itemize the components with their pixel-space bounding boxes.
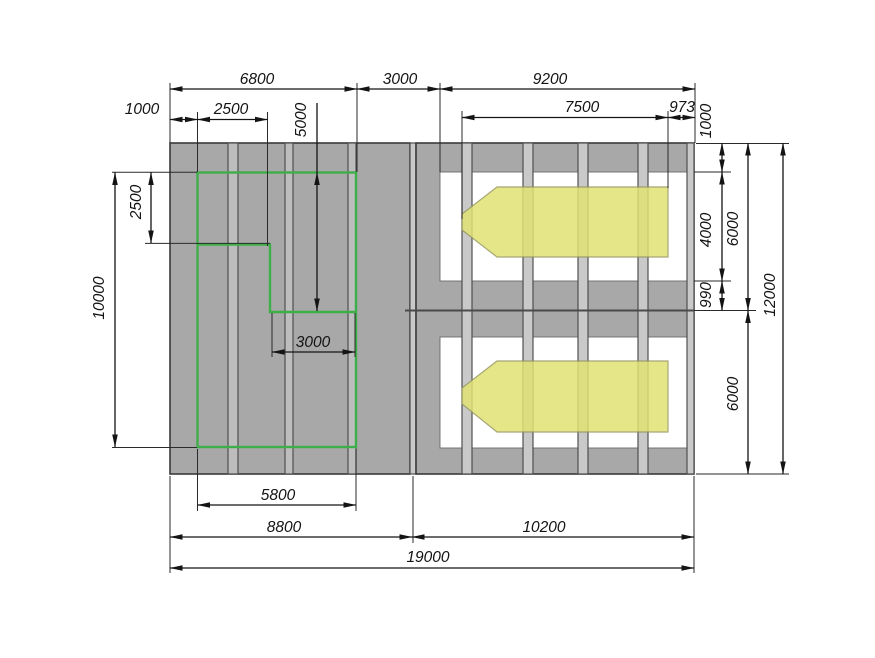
right-column-strip-1 [462, 143, 472, 474]
dim-label-3000-inner: 3000 [296, 334, 331, 351]
dim-label-5000: 5000 [293, 102, 310, 137]
dim-label-9200: 9200 [533, 71, 568, 88]
dim-label-1000r: 1000 [698, 103, 715, 138]
vehicle-arrow-2 [462, 361, 668, 432]
dim-label-19000: 19000 [406, 549, 449, 566]
dim-label-10200: 10200 [522, 519, 565, 536]
left-column-strip-1 [228, 143, 238, 474]
dimensions-right: 1000 4000 990 6000 6000 12000 [694, 103, 789, 474]
dim-label-4000: 4000 [698, 212, 715, 247]
expansion-joint-strip [410, 143, 416, 474]
dim-label-10000: 10000 [91, 276, 108, 319]
plan-svg: 6800 3000 9200 1000 2500 7500 973 2500 1… [0, 0, 875, 658]
dim-label-5800: 5800 [261, 487, 296, 504]
dim-label-2500v: 2500 [128, 184, 145, 220]
left-column-strip-3 [348, 143, 356, 474]
left-column-strip-2 [285, 143, 293, 474]
dim-label-973: 973 [669, 99, 695, 116]
dim-label-2500: 2500 [213, 101, 249, 118]
dim-label-990: 990 [698, 282, 715, 308]
dim-label-6800: 6800 [240, 71, 275, 88]
dim-label-7500: 7500 [565, 99, 600, 116]
right-wall-strip [687, 143, 694, 474]
dim-label-6000-upper: 6000 [725, 211, 742, 246]
dim-label-12000: 12000 [762, 273, 779, 316]
vehicle-arrow-1 [462, 187, 668, 257]
dim-label-8800: 8800 [267, 519, 302, 536]
dim-label-1000: 1000 [125, 101, 160, 118]
dim-label-6000-lower: 6000 [725, 376, 742, 411]
plan-drawing: 6800 3000 9200 1000 2500 7500 973 2500 1… [0, 0, 875, 658]
dim-label-3000: 3000 [383, 71, 418, 88]
